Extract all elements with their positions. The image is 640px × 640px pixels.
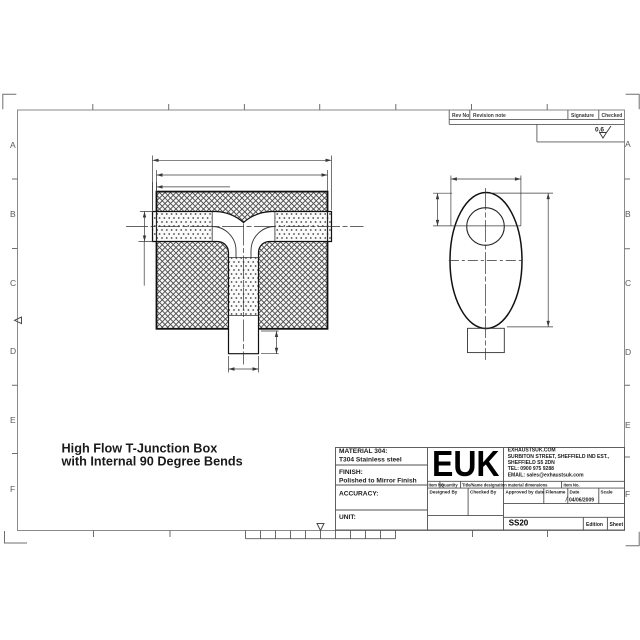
svg-text:Title/Name designation materia: Title/Name designation material dimensio… [462, 482, 548, 487]
svg-text:Designed By: Designed By [430, 490, 458, 495]
svg-text:Edition: Edition [586, 522, 603, 528]
svg-text:Approved by date: Approved by date [506, 490, 545, 495]
svg-text:EXHAUSTSUK.COM: EXHAUSTSUK.COM [508, 448, 556, 454]
svg-text:A: A [625, 139, 631, 149]
svg-text:SURBITON STREET, SHEFFIELD IND: SURBITON STREET, SHEFFIELD IND EST., [508, 454, 610, 460]
svg-text:ACCURACY:: ACCURACY: [339, 491, 378, 498]
svg-text:Filename: Filename [546, 490, 566, 495]
svg-text:F: F [10, 484, 15, 494]
svg-text:E: E [10, 415, 16, 425]
svg-text:F: F [625, 489, 630, 499]
svg-text:FINISH:: FINISH: [339, 469, 363, 476]
svg-text:High Flow T-Junction Box: High Flow T-Junction Box [62, 441, 218, 455]
svg-text:Scale: Scale [601, 490, 613, 495]
svg-text:Date: Date [570, 490, 580, 495]
svg-text:C: C [625, 278, 631, 288]
svg-text:Sheet: Sheet [610, 522, 624, 528]
svg-text:Polished to Mirror Finish: Polished to Mirror Finish [339, 478, 417, 485]
svg-text:Signature: Signature [571, 113, 594, 119]
svg-text:04/06/2009: 04/06/2009 [569, 498, 594, 504]
svg-text:A: A [10, 140, 16, 150]
svg-text:B: B [625, 209, 631, 219]
svg-text:T304 Stainless steel: T304 Stainless steel [339, 457, 402, 464]
svg-text:Rev No: Rev No [452, 113, 469, 119]
svg-text:EUK: EUK [432, 443, 500, 484]
svg-text:C: C [10, 278, 16, 288]
svg-text:Checked By: Checked By [470, 490, 497, 495]
svg-text:B: B [10, 209, 16, 219]
svg-text:MATERIAL 304:: MATERIAL 304: [339, 448, 387, 455]
svg-text:E: E [625, 420, 631, 430]
svg-text:Checked: Checked [602, 113, 623, 119]
svg-text:Item No.: Item No. [564, 482, 580, 487]
svg-text:UNIT:: UNIT: [339, 514, 356, 521]
svg-text:TEL: 0900 975 9288: TEL: 0900 975 9288 [508, 466, 554, 472]
svg-text:SS20: SS20 [509, 519, 529, 528]
svg-text:D: D [10, 346, 16, 356]
svg-text:Revision note: Revision note [473, 113, 506, 119]
svg-text:EMAIL: sales@exhaustsuk.com: EMAIL: sales@exhaustsuk.com [508, 473, 584, 479]
svg-text:Quantity: Quantity [441, 482, 458, 487]
svg-text:with Internal 90 Degree Bends: with Internal 90 Degree Bends [61, 455, 243, 469]
svg-text:D: D [625, 347, 631, 357]
